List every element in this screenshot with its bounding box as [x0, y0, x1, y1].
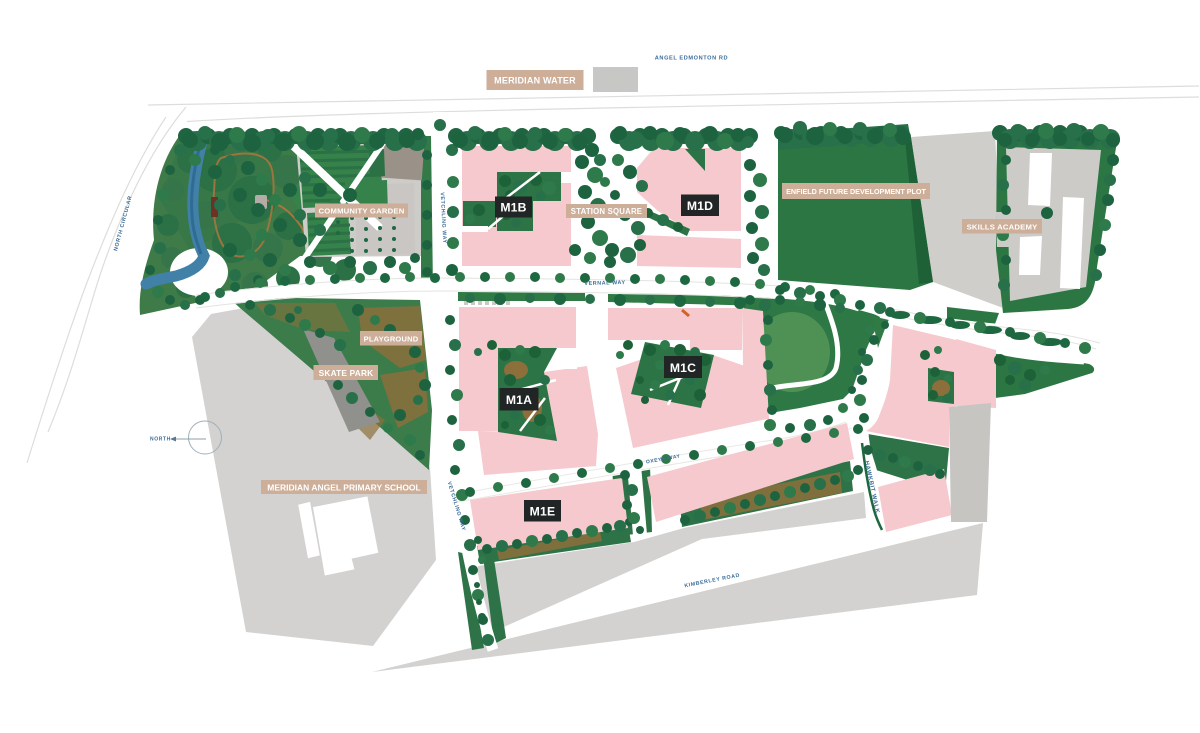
svg-text:PLAYGROUND: PLAYGROUND [364, 335, 419, 344]
svg-text:COMMUNITY GARDEN: COMMUNITY GARDEN [319, 207, 405, 216]
svg-text:M1D: M1D [687, 199, 713, 213]
svg-text:ANGEL EDMONTON RD: ANGEL EDMONTON RD [655, 56, 728, 62]
svg-text:NORTH: NORTH [150, 437, 171, 443]
svg-text:M1A: M1A [506, 393, 532, 407]
svg-text:VERNAL WAY: VERNAL WAY [584, 280, 626, 287]
svg-text:SKATE PARK: SKATE PARK [319, 368, 374, 378]
svg-text:ENFIELD FUTURE DEVELOPMENT PLO: ENFIELD FUTURE DEVELOPMENT PLOT [786, 187, 926, 196]
svg-text:MERIDIAN ANGEL PRIMARY SCHOOL: MERIDIAN ANGEL PRIMARY SCHOOL [267, 483, 420, 493]
svg-text:M1C: M1C [670, 361, 696, 375]
svg-text:SKILLS ACADEMY: SKILLS ACADEMY [967, 223, 1038, 232]
svg-text:STATION SQUARE: STATION SQUARE [571, 207, 642, 216]
svg-text:M1B: M1B [500, 201, 526, 215]
svg-text:M1E: M1E [530, 505, 556, 519]
svg-text:MERIDIAN WATER: MERIDIAN WATER [494, 76, 576, 86]
